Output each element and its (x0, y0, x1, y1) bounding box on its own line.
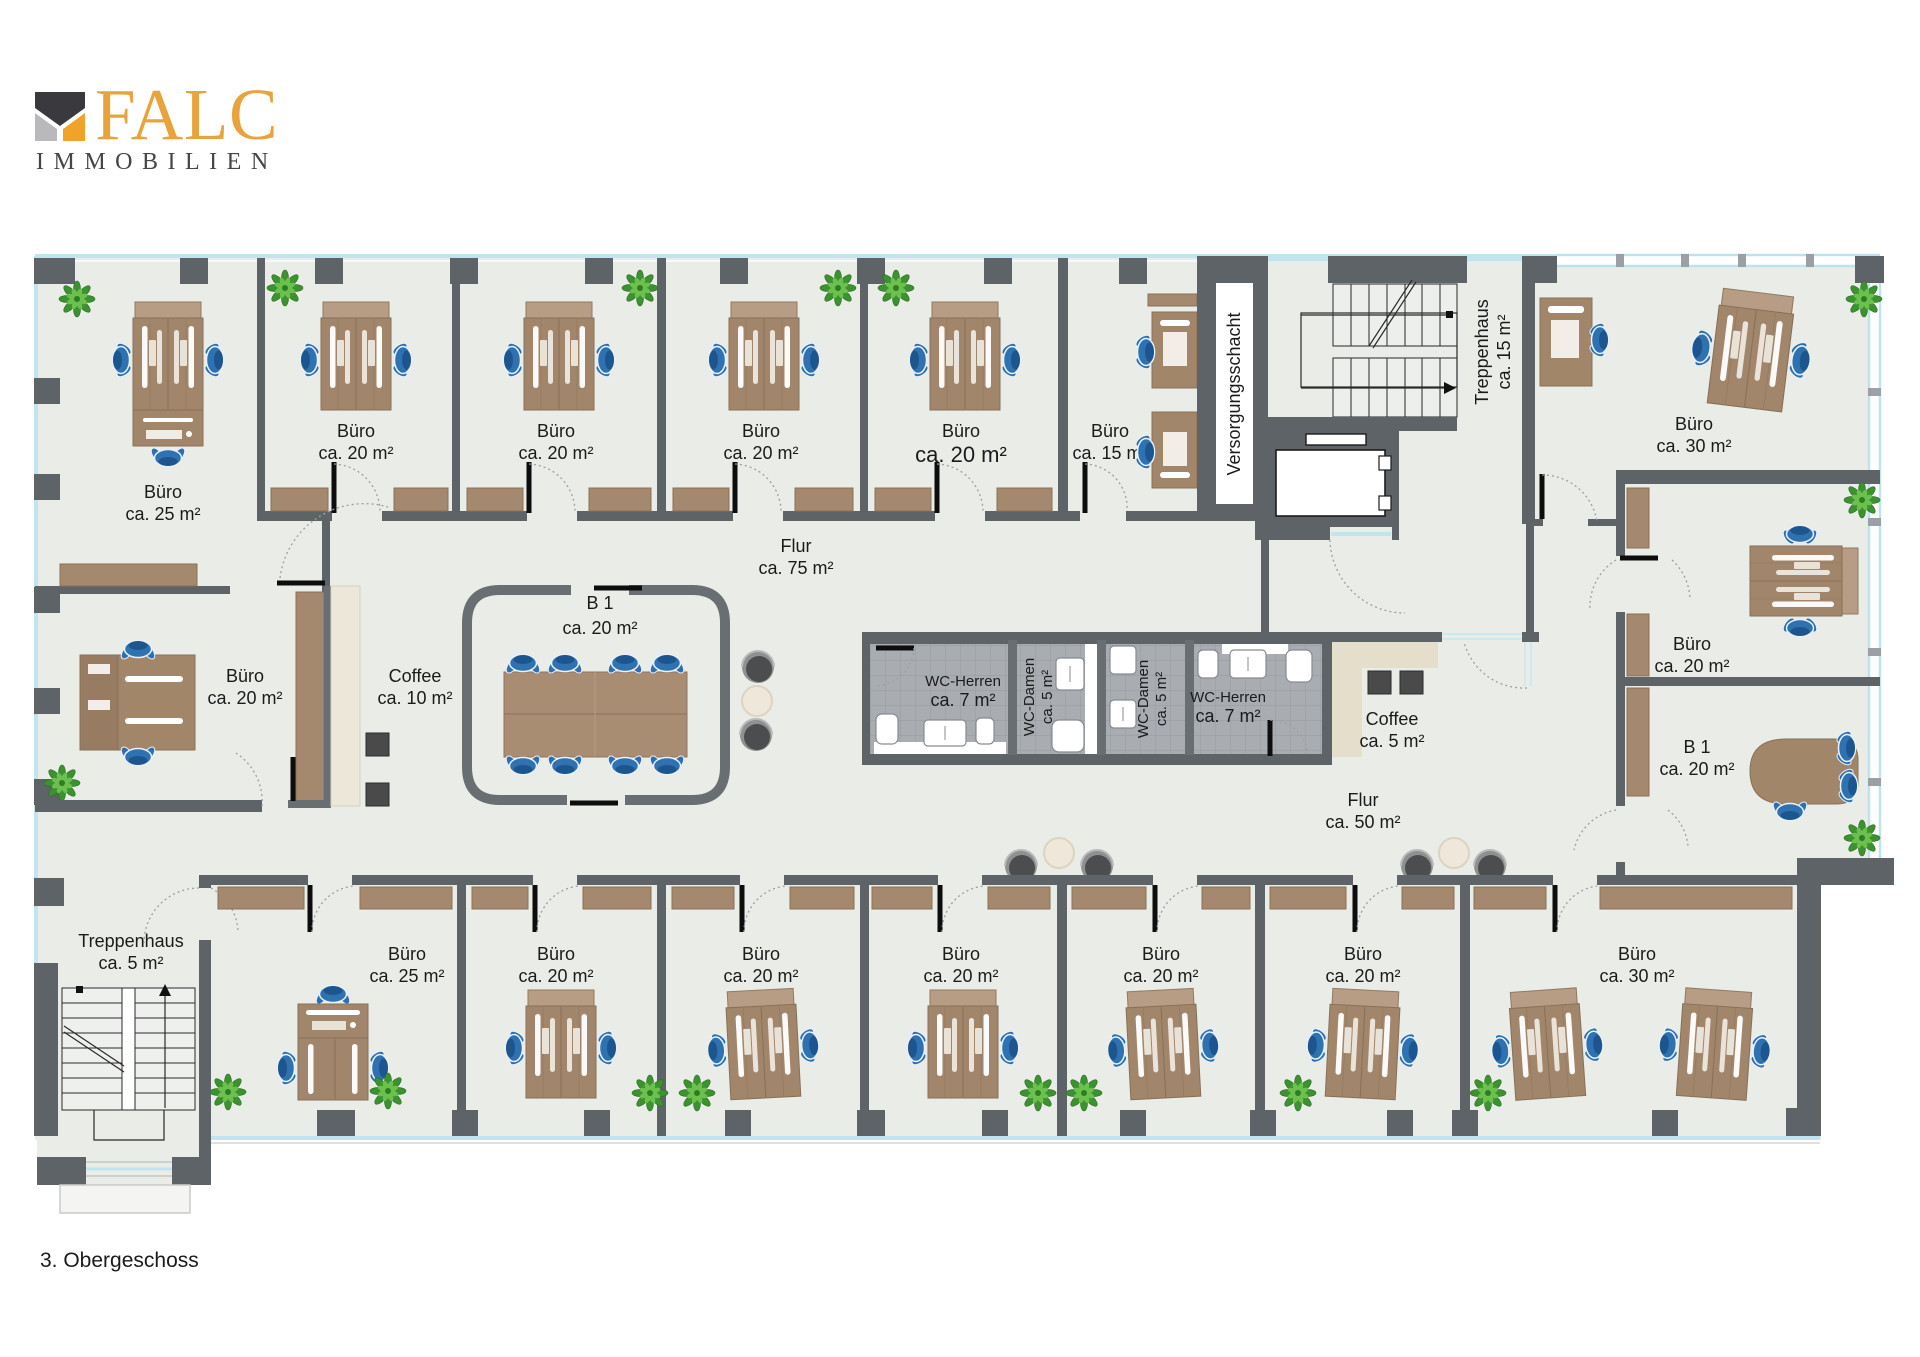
svg-text:ca. 25 m²: ca. 25 m² (369, 966, 444, 986)
svg-text:Büro: Büro (742, 944, 780, 964)
svg-text:Büro: Büro (537, 421, 575, 441)
svg-text:ca. 20 m²: ca. 20 m² (1654, 656, 1729, 676)
svg-text:IMMOBILIEN: IMMOBILIEN (36, 149, 278, 175)
svg-text:ca. 20 m²: ca. 20 m² (723, 443, 798, 463)
svg-text:ca. 7 m²: ca. 7 m² (1195, 706, 1260, 726)
svg-text:Büro: Büro (1142, 944, 1180, 964)
svg-text:Flur: Flur (781, 536, 812, 556)
svg-text:Büro: Büro (1344, 944, 1382, 964)
svg-text:ca. 10 m²: ca. 10 m² (377, 688, 452, 708)
svg-text:ca. 5 m²: ca. 5 m² (1359, 731, 1424, 751)
svg-text:Büro: Büro (388, 944, 426, 964)
svg-text:ca. 30 m²: ca. 30 m² (1656, 436, 1731, 456)
svg-text:WC-Damen: WC-Damen (1021, 658, 1038, 736)
svg-text:Treppenhaus: Treppenhaus (1472, 299, 1492, 404)
svg-text:Büro: Büro (226, 666, 264, 686)
svg-text:ca. 75 m²: ca. 75 m² (758, 558, 833, 578)
svg-text:ca. 20 m²: ca. 20 m² (562, 618, 637, 638)
svg-text:ca. 50 m²: ca. 50 m² (1325, 812, 1400, 832)
svg-text:ca. 20 m²: ca. 20 m² (723, 966, 798, 986)
svg-text:Büro: Büro (1091, 421, 1129, 441)
svg-text:Coffee: Coffee (1366, 709, 1419, 729)
svg-text:Treppenhaus: Treppenhaus (78, 931, 183, 951)
svg-text:3. Obergeschoss: 3. Obergeschoss (40, 1249, 199, 1272)
svg-text:Flur: Flur (1348, 790, 1379, 810)
svg-text:Coffee: Coffee (389, 666, 442, 686)
svg-text:FALC: FALC (95, 74, 278, 155)
svg-text:Büro: Büro (1675, 414, 1713, 434)
svg-text:ca. 20 m²: ca. 20 m² (923, 966, 998, 986)
svg-text:ca. 20 m²: ca. 20 m² (318, 443, 393, 463)
svg-text:Versorgungsschacht: Versorgungsschacht (1224, 312, 1244, 475)
svg-text:WC-Herren: WC-Herren (925, 673, 1001, 690)
svg-text:Büro: Büro (144, 482, 182, 502)
svg-text:ca. 5 m²: ca. 5 m² (1153, 672, 1170, 726)
svg-text:ca. 5 m²: ca. 5 m² (98, 953, 163, 973)
svg-text:Büro: Büro (942, 421, 980, 441)
svg-text:ca. 7 m²: ca. 7 m² (930, 690, 995, 710)
svg-text:ca. 20 m²: ca. 20 m² (915, 442, 1007, 467)
svg-text:Büro: Büro (537, 944, 575, 964)
svg-text:Büro: Büro (742, 421, 780, 441)
svg-text:WC-Damen: WC-Damen (1135, 660, 1152, 738)
svg-text:ca. 20 m²: ca. 20 m² (1123, 966, 1198, 986)
svg-text:ca. 5 m²: ca. 5 m² (1039, 670, 1056, 724)
svg-text:ca. 20 m²: ca. 20 m² (1325, 966, 1400, 986)
svg-text:ca. 20 m²: ca. 20 m² (518, 966, 593, 986)
svg-text:B 1: B 1 (1683, 737, 1710, 757)
svg-text:ca. 30 m²: ca. 30 m² (1599, 966, 1674, 986)
svg-text:Büro: Büro (942, 944, 980, 964)
svg-text:Büro: Büro (1618, 944, 1656, 964)
svg-text:ca. 25 m²: ca. 25 m² (125, 504, 200, 524)
svg-text:Büro: Büro (1673, 634, 1711, 654)
svg-text:ca. 20 m²: ca. 20 m² (1659, 759, 1734, 779)
svg-text:WC-Herren: WC-Herren (1190, 689, 1266, 706)
svg-text:ca. 15 m²: ca. 15 m² (1494, 314, 1514, 389)
svg-text:B 1: B 1 (586, 593, 613, 613)
svg-text:Büro: Büro (337, 421, 375, 441)
svg-text:ca. 20 m²: ca. 20 m² (518, 443, 593, 463)
svg-text:ca. 20 m²: ca. 20 m² (207, 688, 282, 708)
